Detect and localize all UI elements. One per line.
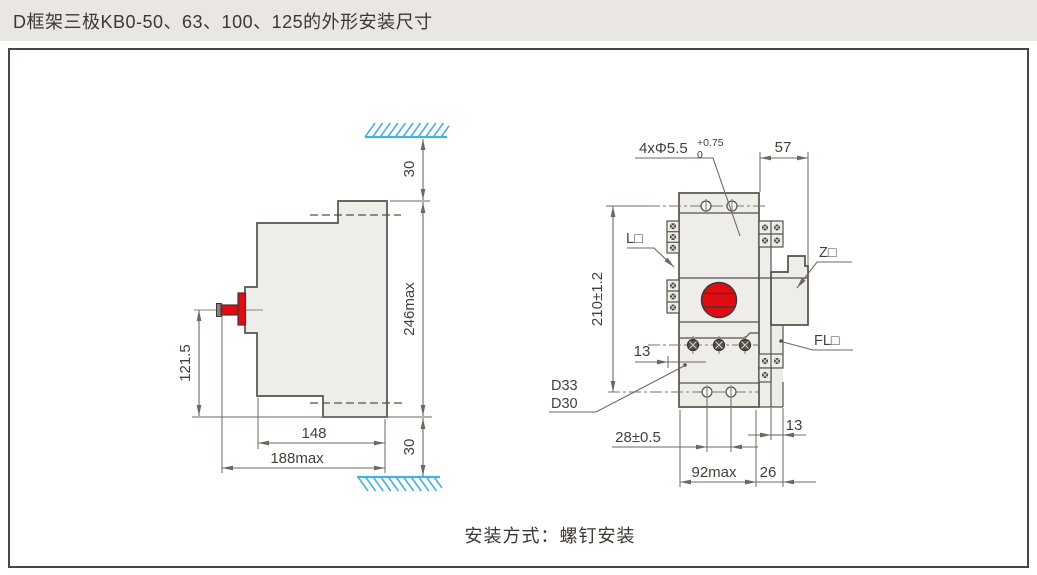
dim-height-max: 246max [401,282,418,336]
dim-top-width: 57 [775,139,792,156]
svg-text:FL□: FL□ [814,333,840,349]
dim-hole-spacing: 28±0.5 [615,429,661,446]
left-terminal-block-lower [667,280,679,313]
dim-handle-height: 121.5 [177,344,194,382]
svg-text:L□: L□ [626,231,643,247]
model-line1: D33 [551,378,578,394]
left-terminal-block-upper [667,221,679,253]
right-terminal-block-upper [759,221,783,247]
breaker-side-body [245,201,387,417]
dim-mount-height: 210±1.2 [589,272,606,326]
dim-bottom-clearance: 30 [401,439,418,456]
technical-drawing: 121.5 148 188max 246max 30 30 [0,0,1037,575]
holes-tol-lower: 0 [697,149,703,161]
bottom-wall-hatch [357,477,442,491]
dim-side: 26 [760,464,777,481]
dim-width-max: 92max [691,464,737,481]
dim-terminal-depth: 13 [634,343,651,360]
dim-depth: 148 [301,425,326,442]
model-callout: D33 D30 [549,363,687,412]
dim-depth-max: 188max [270,450,324,467]
dim-top-clearance: 30 [401,161,418,178]
holes-tol-upper: +0.75 [697,137,724,149]
front-view: 4xΦ5.5 +0.75 0 57 210±1.2 13 L□ Z□ FL□ [549,137,853,487]
z-attachment [771,256,808,325]
aux-label-fl: FL□ [779,333,853,350]
side-view: 121.5 148 188max 246max 30 30 [177,123,449,491]
top-wall-hatch [365,123,449,137]
red-button [702,283,737,318]
model-line2: D30 [551,396,578,412]
right-column [759,247,771,407]
dim-side-gap: 13 [786,417,803,434]
svg-text:Z□: Z□ [819,245,837,261]
holes-label: 4xΦ5.5 [639,140,688,157]
mounting-caption: 安装方式：螺钉安装 [350,522,750,548]
